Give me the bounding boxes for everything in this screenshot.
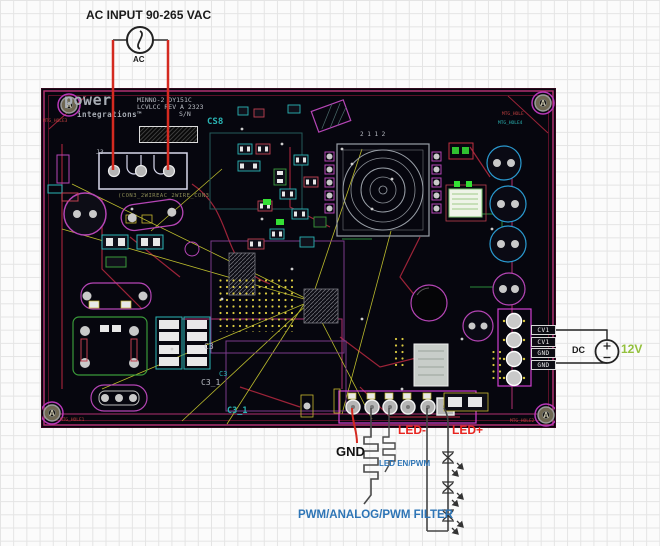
schematic-annotations xyxy=(0,0,660,546)
edge-pin-gnd-a: GND xyxy=(531,348,556,358)
gnd-wire xyxy=(352,408,357,443)
edge-pin-cv1-b: CV1 xyxy=(531,337,556,347)
document-canvas: A A A A xyxy=(0,0,660,546)
edge-pin-cv1-a: CV1 xyxy=(531,325,556,335)
led-symbol-1 xyxy=(442,452,463,476)
ac-source-label: AC xyxy=(133,56,145,64)
edge-pin-gnd-b: GND xyxy=(531,360,556,370)
led-en-pwm-label: LED EN/PWM xyxy=(379,460,430,468)
dc-source-icon xyxy=(596,340,619,363)
ac-input-title: AC INPUT 90-265 VAC xyxy=(86,9,211,21)
dc-source-label: DC xyxy=(572,346,585,355)
resistor-symbol-pwm-filter xyxy=(364,408,378,504)
dc-voltage-label: 12V xyxy=(621,343,642,355)
led-minus-label: LED- xyxy=(398,424,426,436)
gnd-label: GND xyxy=(336,445,365,458)
ac-source-icon xyxy=(113,27,168,53)
pwm-filter-label: PWM/ANALOG/PWM FILTER xyxy=(298,510,453,522)
led-plus-label: LED+ xyxy=(452,424,483,436)
led-symbol-2 xyxy=(442,482,463,506)
